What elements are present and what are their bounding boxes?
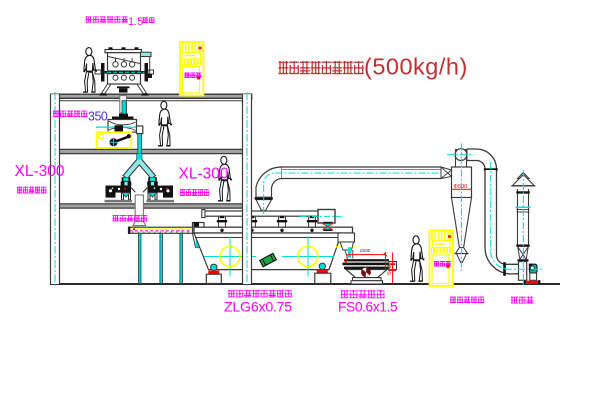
svg-text:350: 350	[88, 110, 108, 124]
svg-text:1500: 1500	[360, 248, 371, 254]
svg-text:XL-300: XL-300	[179, 166, 229, 183]
svg-text:XL-300: XL-300	[15, 163, 65, 180]
svg-text:FS0.6x1.5: FS0.6x1.5	[338, 300, 398, 315]
svg-text:ZLG6x0.75: ZLG6x0.75	[224, 300, 292, 316]
svg-text:1.5: 1.5	[128, 16, 143, 28]
svg-text:540: 540	[387, 265, 393, 275]
svg-text:(500kg/h): (500kg/h)	[364, 54, 468, 80]
